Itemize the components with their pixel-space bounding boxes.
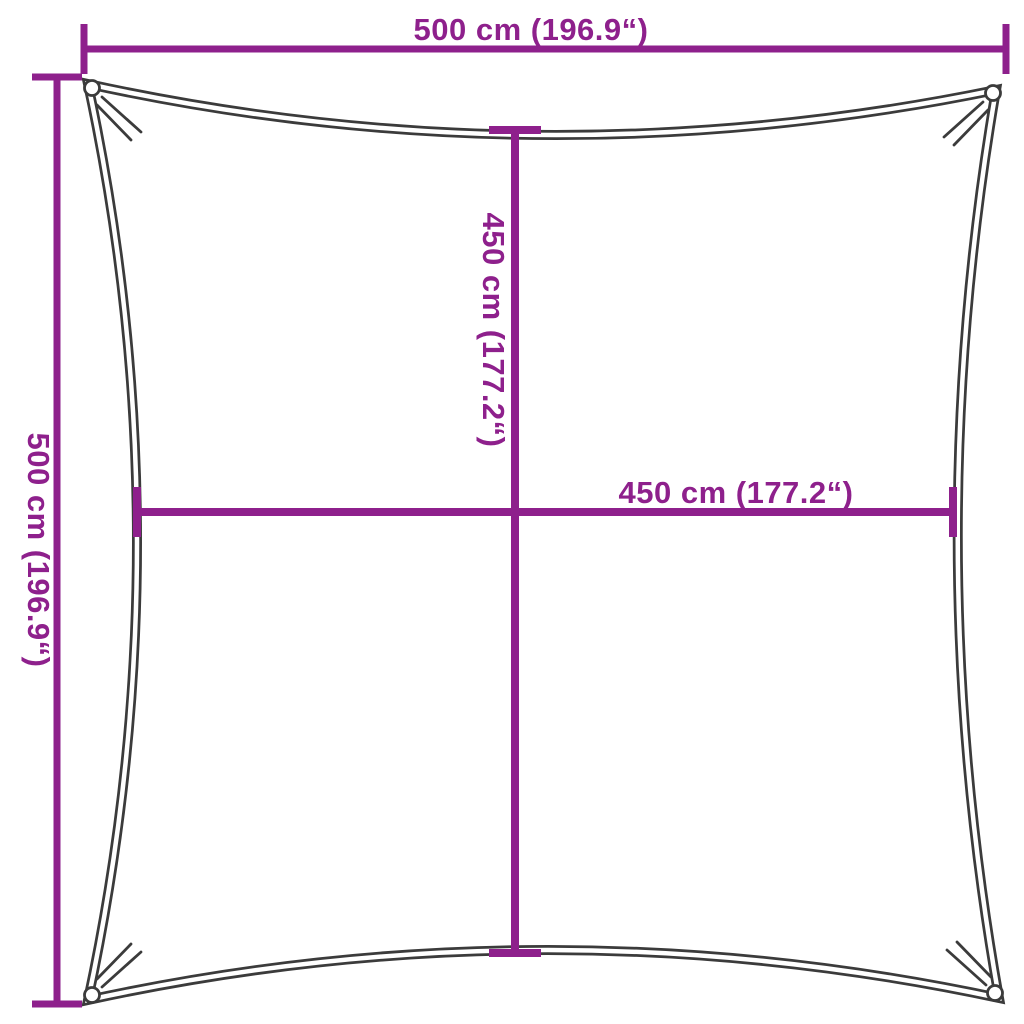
shade-sail-diagram-svg: 500 cm (196.9“) 500 cm (196.9“) 450 cm (… [0, 0, 1024, 1024]
corner-ring-icon [988, 986, 1003, 1001]
dimension-label-top: 500 cm (196.9“) [414, 12, 649, 47]
dimension-top-width: 500 cm (196.9“) [84, 12, 1006, 74]
dimension-label-left: 500 cm (196.9“) [21, 433, 56, 668]
sail-hem-outer-line [88, 84, 999, 1000]
corner-ring-icon [986, 86, 1001, 101]
shade-sail-shape [88, 84, 999, 1000]
dimension-diagram: 500 cm (196.9“) 500 cm (196.9“) 450 cm (… [0, 0, 1024, 1024]
dimension-label-inner-horizontal: 450 cm (177.2“) [619, 475, 854, 510]
corner-ring-icon [85, 988, 100, 1003]
dimension-left-height: 500 cm (196.9“) [21, 77, 82, 1004]
dimension-label-inner-vertical: 450 cm (177.2“) [476, 213, 511, 448]
corner-ring-icon [85, 81, 100, 96]
